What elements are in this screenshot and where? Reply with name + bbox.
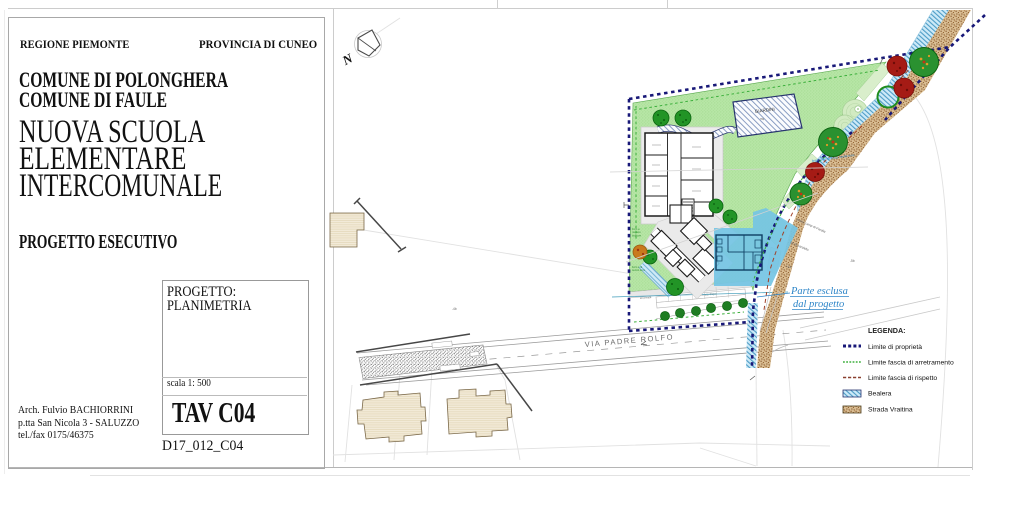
svg-text:VIA PADRE ROLFO: VIA PADRE ROLFO <box>584 332 674 349</box>
svg-text:Bealera: Bealera <box>868 391 892 398</box>
svg-text:-5b: -5b <box>850 259 855 263</box>
svg-text:dal progetto: dal progetto <box>793 299 844 310</box>
svg-text:N: N <box>339 50 356 68</box>
svg-text:Parte esclusa: Parte esclusa <box>790 286 848 297</box>
svg-text:+1a: +1a <box>786 265 792 269</box>
svg-text:LEGENDA:: LEGENDA: <box>868 326 906 335</box>
svg-text:bollitore: bollitore <box>632 233 642 237</box>
svg-text:centro term: centro term <box>632 268 645 272</box>
svg-text:Limite fascia di rispetto: Limite fascia di rispetto <box>868 375 937 382</box>
svg-text:Limite fascia di arretramento: Limite fascia di arretramento <box>868 360 954 367</box>
svg-text:-4b: -4b <box>452 307 457 311</box>
svg-text:Strada Vraitina: Strada Vraitina <box>868 407 913 414</box>
svg-text:mq: mq <box>760 116 765 121</box>
svg-text:Limite di proprietà: Limite di proprietà <box>868 344 922 351</box>
